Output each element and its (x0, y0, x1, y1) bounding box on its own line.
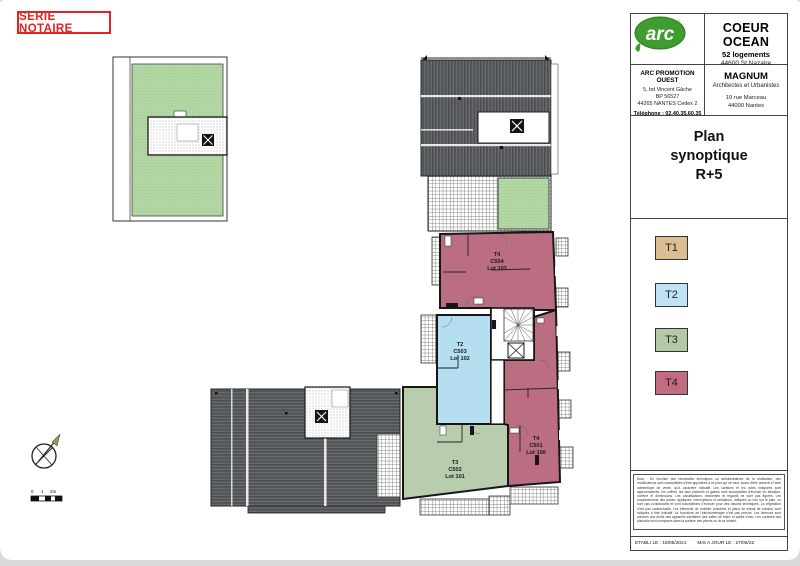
unit-c501-lot: Lot 100 (526, 450, 546, 456)
promoter-cell: ARC PROMOTION OUEST 5, bd Vincent Gâche … (631, 65, 705, 115)
scanned-plan-page: { "sheet": { "series_label": "SERIE NOTA… (0, 0, 800, 566)
unit-c501-code: C501 (529, 443, 542, 449)
unit-c503-lot: Lot 102 (450, 356, 470, 362)
unit-c502-type: T3 (452, 460, 459, 466)
footer-row: ETABLI LE : 18/05/2021 MIS A JOUR LE : 2… (631, 537, 787, 550)
legend-swatch-t1: T1 (655, 236, 688, 260)
scale-bar: 0 1 2m (31, 489, 62, 501)
apartment-floor-plan: T4 C504 Lot 103 T2 C503 Lot 102 T3 C502 … (403, 232, 573, 515)
legend-swatch-t3: T3 (655, 328, 688, 352)
architect-address-line2: 44000 Nantes (726, 103, 767, 111)
promoter-address-line3: 44265 NANTES Cedex 2 (638, 101, 698, 108)
scale-tick-1: 1 (41, 489, 44, 494)
notes-cell: Nota : En fonction des nécessités techni… (631, 471, 787, 537)
notes-box: Nota : En fonction des nécessités techni… (633, 474, 785, 530)
promoter-address-line1: 5, bd Vincent Gâche (638, 87, 698, 94)
balcony-grid (377, 434, 400, 497)
plan-title-cell: Plan synoptique R+5 (631, 116, 787, 219)
unit-c502-lot: Lot 101 (445, 474, 465, 480)
unit-c503 (437, 315, 491, 424)
title-block-header-row: GROUPE arc COEUR OCEAN 52 logements 4460… (631, 14, 787, 65)
plan-title: Plan synoptique R+5 (631, 128, 787, 185)
architect-address: 10 rue Marceau 44000 Nantes (726, 95, 767, 111)
scale-tick-2: 2m (50, 489, 57, 494)
stakeholders-row: ARC PROMOTION OUEST 5, bd Vincent Gâche … (631, 65, 787, 116)
legend-swatch-t2: T2 (655, 283, 688, 307)
plan-title-line2: synoptique (631, 147, 787, 166)
project-name: COEUR OCEAN (705, 21, 787, 49)
elevator-shaft-icon (510, 119, 524, 133)
promoter-address-line2: BP 56527 (638, 94, 698, 101)
architect-name: MAGNUM (724, 71, 768, 82)
corridor (491, 360, 504, 424)
plan-title-line1: Plan (631, 128, 787, 147)
legend-label-t3: T3 (665, 334, 678, 346)
legend-label-t4: T4 (665, 377, 678, 389)
scale-tick-0: 0 (31, 489, 34, 494)
architect-address-line1: 10 rue Marceau (726, 95, 767, 103)
promoter-address: 5, bd Vincent Gâche BP 56527 44265 NANTE… (638, 87, 698, 108)
architect-role: Architectes et Urbanistes (713, 83, 780, 89)
building-northwest-roof (113, 57, 227, 221)
elevator-icon (508, 343, 524, 358)
building-north-roof (421, 55, 558, 231)
north-arrow-icon (32, 434, 60, 468)
arc-logo-text: arc (646, 24, 675, 45)
elevator-shaft-icon (202, 134, 214, 146)
building-southwest-roof (211, 387, 400, 513)
unit-c504-type: T4 (494, 252, 501, 258)
project-program: 52 logements (722, 50, 770, 59)
unit-c502-code: C502 (448, 467, 461, 473)
roof-garden-square (498, 178, 549, 229)
arc-logo-icon: arc (631, 14, 689, 54)
staircase (504, 309, 533, 341)
unit-c503-code: C503 (453, 349, 466, 355)
established-date: ETABLI LE : 18/05/2021 (635, 541, 686, 546)
architect-cell: MAGNUM Architectes et Urbanistes 10 rue … (705, 65, 787, 115)
unit-c503-type: T2 (457, 342, 464, 348)
updated-date: MIS A JOUR LE : 27/06/22 (697, 541, 754, 546)
project-cell: COEUR OCEAN 52 logements 44600 St Nazair… (705, 14, 787, 64)
legend-label-t2: T2 (665, 289, 678, 301)
promoter-name: ARC PROMOTION OUEST (631, 70, 704, 84)
legend: T1 T2 T3 T4 (631, 219, 787, 471)
logo-cell: GROUPE arc (631, 14, 705, 64)
elevator-shaft-icon (315, 410, 328, 423)
drawing-sheet: SERIE NOTAIRE (0, 0, 800, 560)
notes-text: Nota : En fonction des nécessités techni… (637, 477, 781, 523)
plan-title-line3: R+5 (631, 166, 787, 185)
title-block: GROUPE arc COEUR OCEAN 52 logements 4460… (630, 13, 788, 551)
unit-c504-code: C504 (490, 259, 504, 265)
unit-c501-type: T4 (533, 436, 540, 442)
unit-c504-lot: Lot 103 (487, 266, 507, 272)
legend-swatch-t4: T4 (655, 371, 688, 395)
legend-label-t1: T1 (665, 242, 678, 254)
